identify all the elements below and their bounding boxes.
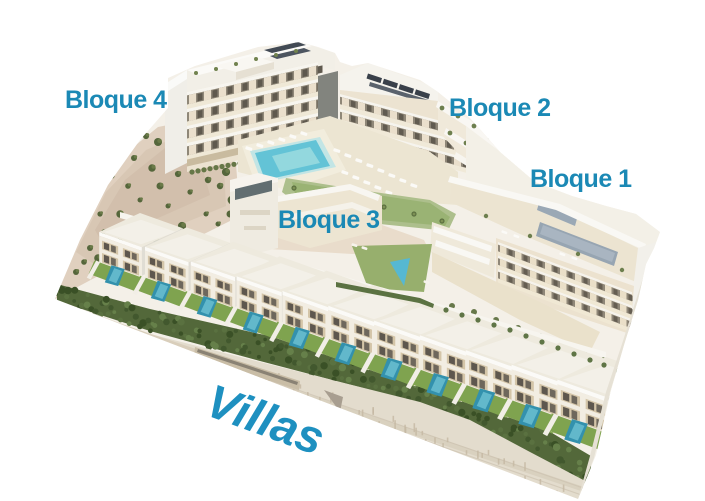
svg-text:Bloque 2: Bloque 2: [449, 94, 551, 122]
svg-text:Bloque 4: Bloque 4: [65, 86, 167, 114]
svg-text:Bloque 1: Bloque 1: [530, 165, 632, 193]
svg-text:Bloque 3: Bloque 3: [278, 206, 380, 234]
